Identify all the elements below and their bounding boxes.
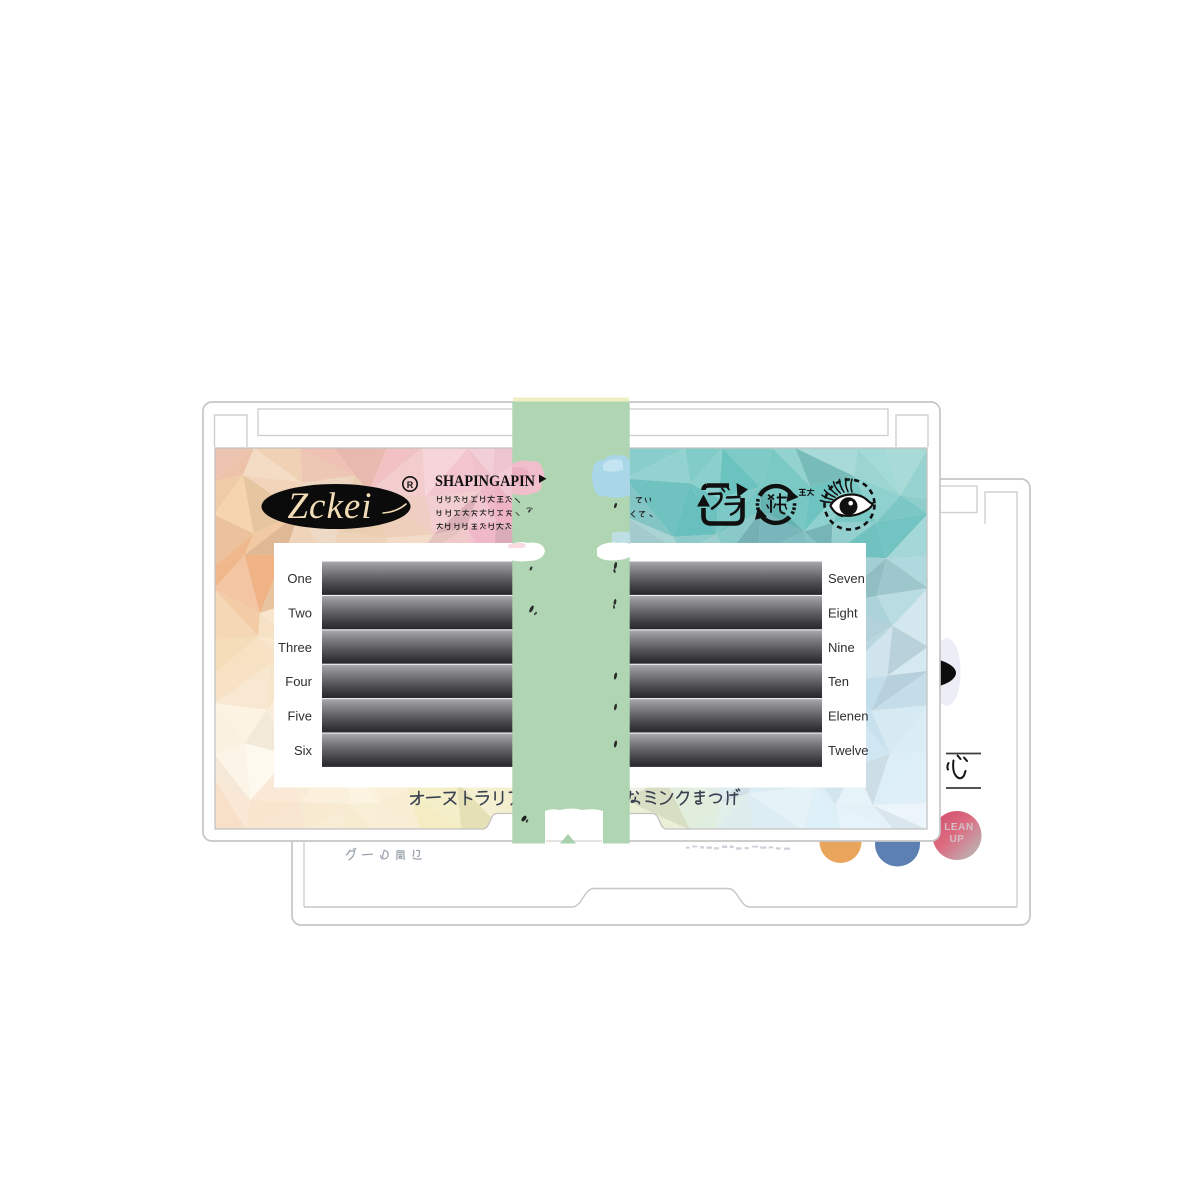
svg-text:Ten: Ten <box>828 674 849 689</box>
svg-text:Elenen: Elenen <box>828 709 868 724</box>
svg-text:Six: Six <box>294 743 313 758</box>
svg-text:Eight: Eight <box>828 605 858 620</box>
svg-text:Nine: Nine <box>828 640 855 655</box>
svg-text:LEAN: LEAN <box>944 822 974 833</box>
svg-text:Three: Three <box>278 640 312 655</box>
svg-text:One: One <box>287 571 312 586</box>
svg-text:Twelve: Twelve <box>828 743 868 758</box>
svg-text:Two: Two <box>288 605 312 620</box>
svg-text:SHAPINGAPIN: SHAPINGAPIN <box>435 473 535 490</box>
svg-text:Five: Five <box>287 709 312 724</box>
svg-text:Zckei: Zckei <box>287 486 372 527</box>
svg-text:Seven: Seven <box>828 571 865 586</box>
svg-text:UP: UP <box>949 834 964 845</box>
svg-text:R: R <box>407 480 414 490</box>
svg-text:Four: Four <box>285 674 312 689</box>
